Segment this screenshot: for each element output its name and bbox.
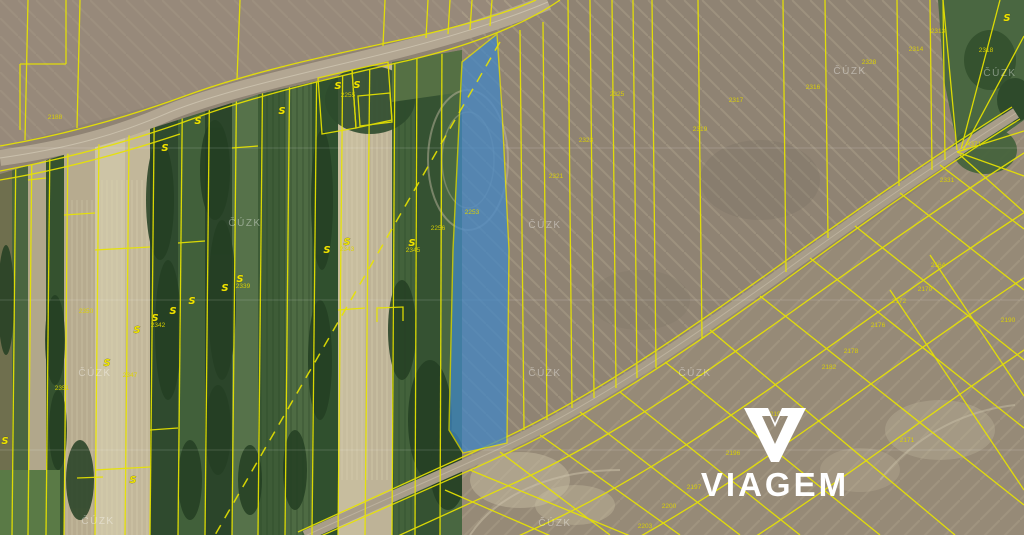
svg-text:2314: 2314	[909, 46, 924, 53]
svg-text:ČÚZK: ČÚZK	[833, 64, 866, 77]
svg-text:S: S	[1, 436, 8, 447]
svg-text:2323: 2323	[579, 137, 594, 144]
svg-text:2351: 2351	[55, 385, 70, 392]
svg-text:2200: 2200	[662, 503, 677, 510]
svg-text:2176: 2176	[871, 322, 886, 329]
svg-text:S: S	[334, 81, 341, 92]
svg-text:2319: 2319	[693, 126, 708, 133]
svg-text:S: S	[221, 283, 228, 294]
svg-text:ČÚZK: ČÚZK	[538, 516, 571, 529]
svg-text:2316: 2316	[806, 84, 821, 91]
svg-text:2321: 2321	[549, 173, 564, 180]
svg-text:2188: 2188	[48, 114, 63, 121]
svg-text:S: S	[1003, 13, 1010, 24]
svg-text:2318: 2318	[979, 47, 994, 54]
svg-text:2170: 2170	[918, 286, 933, 293]
svg-text:S: S	[194, 116, 201, 127]
svg-text:2190: 2190	[1001, 317, 1016, 324]
viagem-gem-icon	[742, 408, 808, 464]
svg-text:S: S	[133, 325, 140, 336]
svg-text:2256: 2256	[431, 225, 446, 232]
svg-text:S: S	[343, 237, 350, 248]
svg-text:ČÚZK: ČÚZK	[528, 218, 561, 231]
svg-text:S: S	[408, 238, 415, 249]
brand-name: VIAGEM	[655, 468, 895, 501]
svg-text:2347: 2347	[123, 372, 138, 379]
svg-text:S: S	[169, 306, 176, 317]
svg-text:S: S	[323, 245, 330, 256]
svg-text:2350: 2350	[79, 308, 94, 315]
svg-text:2255: 2255	[341, 92, 356, 99]
svg-text:S: S	[188, 296, 195, 307]
svg-text:ČÚZK: ČÚZK	[78, 366, 111, 379]
svg-text:2325: 2325	[610, 91, 625, 98]
brand-watermark: VIAGEM	[655, 408, 895, 501]
svg-text:ČÚZK: ČÚZK	[983, 66, 1016, 79]
svg-text:2171: 2171	[900, 437, 915, 444]
svg-text:2182: 2182	[822, 364, 837, 371]
svg-text:2328: 2328	[862, 59, 877, 66]
svg-text:S: S	[151, 313, 158, 324]
svg-text:ČÚZK: ČÚZK	[528, 366, 561, 379]
svg-text:S: S	[129, 475, 136, 486]
svg-text:2164: 2164	[931, 262, 946, 269]
svg-text:2331: 2331	[940, 177, 955, 184]
svg-text:2172: 2172	[892, 298, 907, 305]
svg-text:S: S	[278, 106, 285, 117]
svg-text:2317: 2317	[729, 97, 744, 104]
svg-text:2178: 2178	[844, 348, 859, 355]
svg-text:ČÚZK: ČÚZK	[81, 514, 114, 527]
svg-text:ČÚZK: ČÚZK	[228, 216, 261, 229]
svg-text:S: S	[161, 143, 168, 154]
svg-text:2313: 2313	[931, 28, 946, 35]
svg-text:S: S	[236, 274, 243, 285]
svg-text:S: S	[353, 80, 360, 91]
svg-text:2253: 2253	[465, 209, 480, 216]
svg-text:ČÚZK: ČÚZK	[678, 366, 711, 379]
svg-text:2203: 2203	[638, 523, 653, 530]
map-viewport[interactable]: 2188225523502351234723422339234323452256…	[0, 0, 1024, 535]
svg-text:4371: 4371	[967, 141, 982, 148]
